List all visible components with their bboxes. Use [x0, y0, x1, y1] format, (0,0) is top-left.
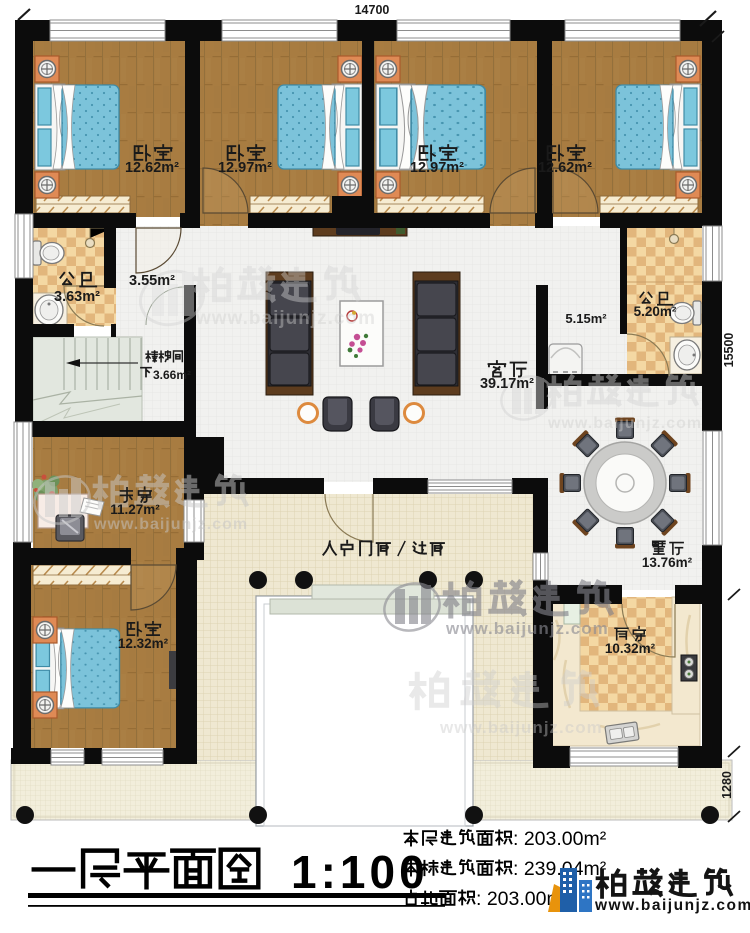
svg-text:12.32m²: 12.32m² [118, 636, 169, 651]
svg-text:15500: 15500 [722, 333, 736, 368]
svg-text:3.55m²: 3.55m² [129, 273, 175, 289]
svg-text:3.63m²: 3.63m² [54, 289, 100, 305]
svg-text:12.97m²: 12.97m² [410, 160, 464, 176]
svg-text:3.66m²: 3.66m² [153, 368, 191, 382]
svg-text:39.17m²: 39.17m² [480, 376, 534, 392]
svg-text:12.62m²: 12.62m² [125, 160, 179, 176]
svg-text:12.62m²: 12.62m² [538, 160, 592, 176]
svg-text:www.baijunjz.com: www.baijunjz.com [439, 718, 603, 737]
svg-text:10.32m²: 10.32m² [605, 641, 656, 656]
svg-text:www.baijunjz.com: www.baijunjz.com [195, 308, 376, 329]
svg-text:11.27m²: 11.27m² [110, 502, 160, 517]
svg-text:1280: 1280 [720, 771, 734, 799]
svg-text:www.baijunjz.com: www.baijunjz.com [547, 415, 702, 432]
svg-text:12.97m²: 12.97m² [218, 160, 272, 176]
svg-text:www.baijunjz.com: www.baijunjz.com [445, 619, 609, 638]
svg-text:13.76m²: 13.76m² [642, 555, 693, 570]
svg-text:: 239.04m²: : 239.04m² [513, 858, 607, 880]
svg-text:www.baijunjz.com: www.baijunjz.com [594, 897, 750, 914]
svg-text:: 203.00m²: : 203.00m² [513, 828, 607, 850]
svg-text:5.15m²: 5.15m² [565, 311, 607, 326]
svg-text:5.20m²: 5.20m² [634, 304, 677, 319]
svg-text:14700: 14700 [355, 3, 390, 17]
svg-text:www.baijunjz.com: www.baijunjz.com [93, 516, 248, 533]
